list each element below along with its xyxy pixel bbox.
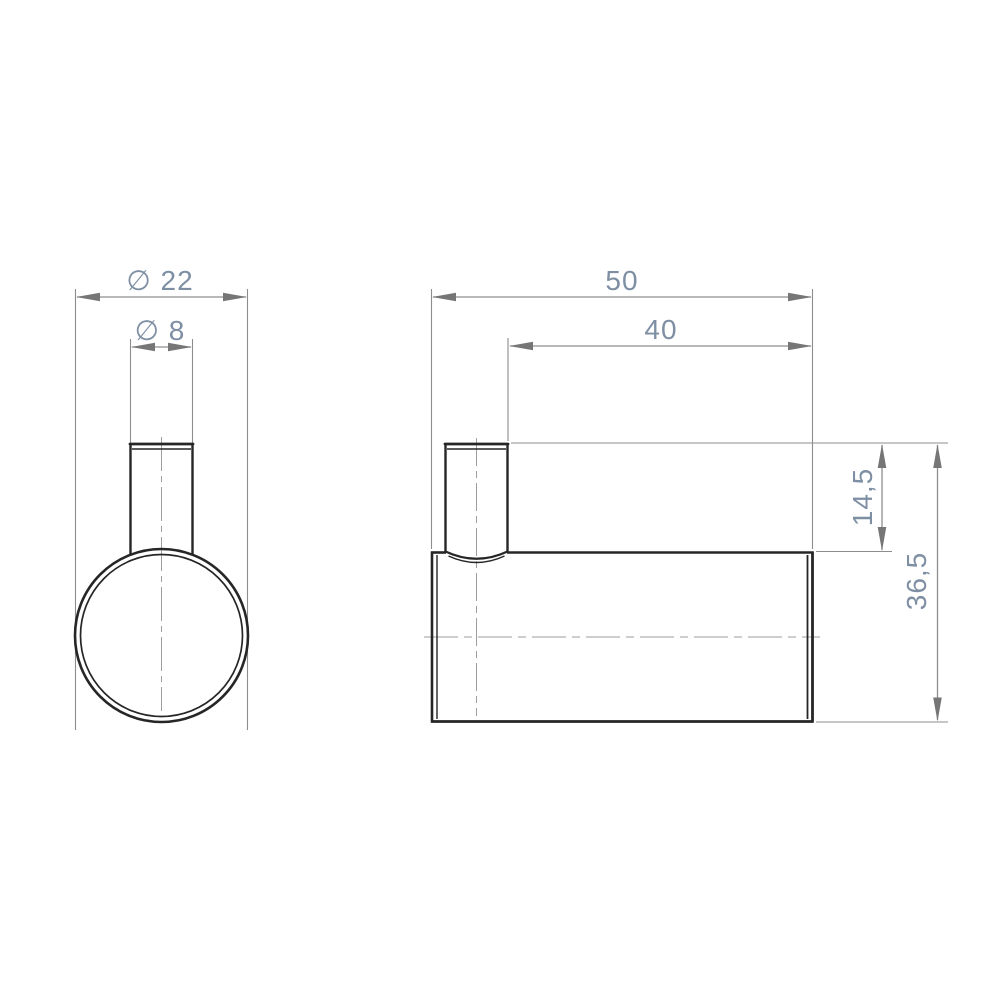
dimension-text-body-diameter: ∅ 22 <box>126 265 193 296</box>
side-view: 50 40 14,5 36,5 <box>424 265 948 723</box>
arrowhead-icon <box>788 293 812 302</box>
arrowhead-icon <box>509 342 533 351</box>
arrowhead-icon <box>878 444 887 468</box>
arrowhead-icon <box>432 293 456 302</box>
dimension-text-overall-length: 50 <box>605 265 638 296</box>
arrowhead-icon <box>933 444 942 468</box>
dimension-text-peg-diameter: ∅ 8 <box>135 315 186 346</box>
arrowhead-icon <box>223 293 247 302</box>
technical-drawing: ∅ 22 ∅ 8 50 40 <box>0 0 1000 1000</box>
drawing-sheet: ∅ 22 ∅ 8 50 40 <box>0 0 1000 1000</box>
dimension-text-length-to-peg: 40 <box>644 314 677 345</box>
arrowhead-icon <box>76 293 100 302</box>
arrowhead-icon <box>878 527 887 551</box>
arrowhead-icon <box>933 698 942 722</box>
dimension-text-overall-height: 36,5 <box>901 552 932 611</box>
dimension-text-peg-height: 14,5 <box>847 468 878 527</box>
front-view: ∅ 22 ∅ 8 <box>75 265 248 730</box>
arrowhead-icon <box>788 342 812 351</box>
